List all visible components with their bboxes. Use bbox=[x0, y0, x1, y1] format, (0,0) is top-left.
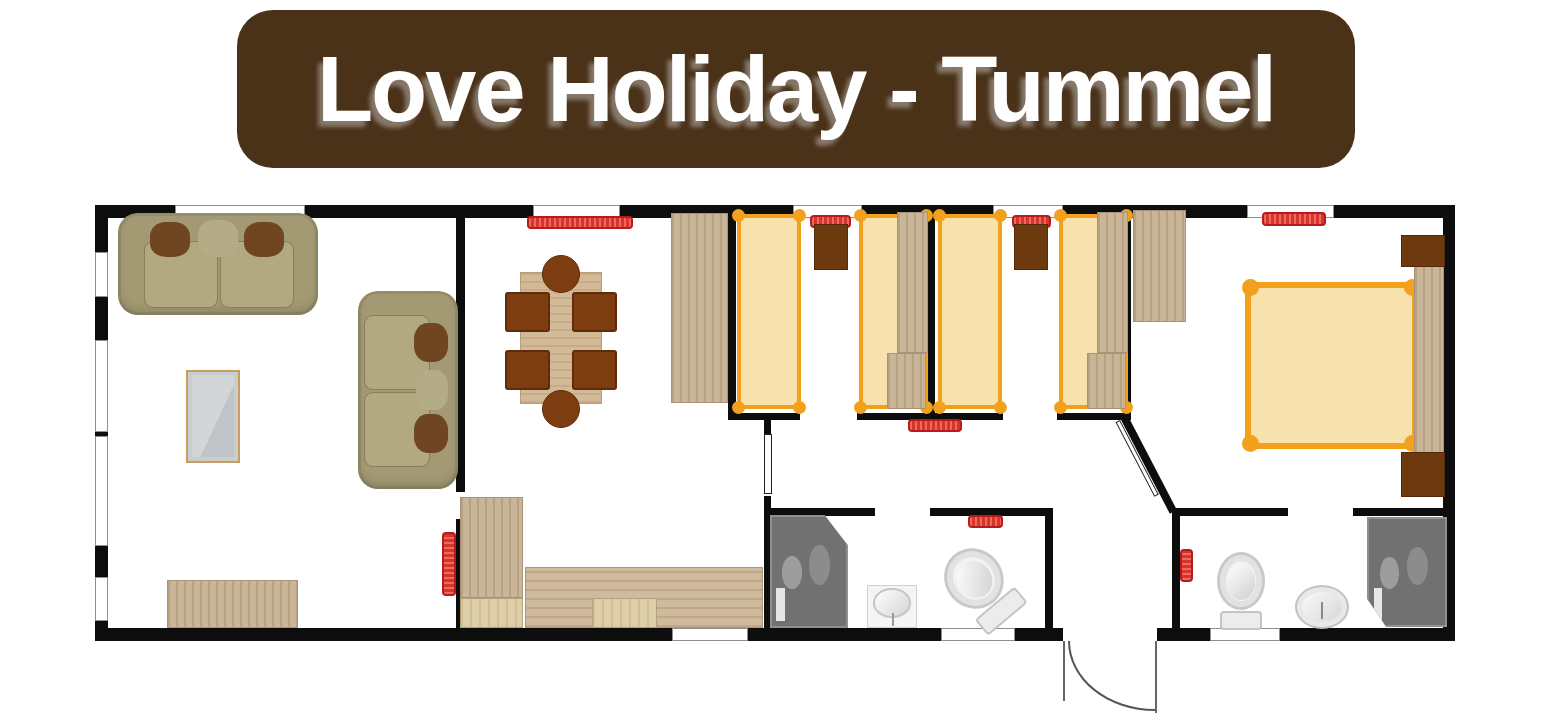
bed-left-dot bbox=[732, 209, 745, 222]
shower-room-toilet bbox=[932, 536, 1030, 638]
dining-area-stool-top bbox=[542, 255, 580, 293]
bedroom-1-bedside-unit bbox=[814, 224, 848, 270]
structure-window-bottom-1 bbox=[672, 628, 748, 641]
hallway-entrance-opening bbox=[1063, 628, 1157, 641]
toilet-bowl-in bbox=[1227, 564, 1256, 600]
shower-d2 bbox=[1407, 547, 1428, 585]
structure-wall-hall-ensuite bbox=[1172, 508, 1180, 641]
bedroom-2-wardrobe-lower bbox=[1087, 353, 1126, 409]
toilet-cistern bbox=[1220, 611, 1262, 631]
double-bed-dot bbox=[1242, 279, 1259, 296]
structure-window-left-1 bbox=[95, 252, 108, 297]
shower-room-door bbox=[764, 434, 772, 494]
shower-d1 bbox=[782, 556, 801, 589]
bedroom-1-wardrobe-lower bbox=[887, 353, 926, 409]
dining-area-chair-4 bbox=[572, 350, 617, 390]
dining-area-tall-cabinet bbox=[671, 213, 728, 403]
structure-wall-kitchen-corridor-lower bbox=[764, 496, 771, 641]
sink-tap bbox=[892, 613, 894, 625]
ensuite-toilet bbox=[1217, 552, 1265, 630]
bedroom-2-bedside-unit bbox=[1014, 224, 1048, 270]
ensuite-radiator bbox=[1180, 549, 1193, 582]
dining-area-chair-3 bbox=[505, 350, 550, 390]
shower-d3 bbox=[776, 588, 784, 621]
hallway-entrance-door-arc bbox=[1068, 641, 1155, 711]
bed-left-dot bbox=[933, 209, 946, 222]
dining-area-radiator bbox=[527, 216, 633, 229]
kitchen-tall-unit bbox=[460, 497, 523, 598]
master-bedroom-radiator bbox=[1262, 212, 1326, 226]
living-room-tv-unit bbox=[186, 370, 240, 463]
structure-window-bottom-2 bbox=[941, 628, 1015, 641]
master-bedroom-double-bed bbox=[1245, 282, 1418, 449]
structure-window-left-2 bbox=[95, 340, 108, 432]
living-room-large-sofa bbox=[118, 213, 318, 315]
shower-d1 bbox=[1380, 557, 1400, 589]
bed-right-dot bbox=[1054, 401, 1067, 414]
corridor-radiator bbox=[908, 419, 962, 432]
large-sofa-pilc bbox=[198, 220, 238, 257]
bedroom-1-wardrobe-upper bbox=[897, 212, 928, 353]
small-sofa-pilc bbox=[416, 370, 448, 410]
bed-left-dot bbox=[933, 401, 946, 414]
shower-room-sink bbox=[867, 585, 917, 628]
structure-wall-ensuite-top-right bbox=[1353, 508, 1455, 516]
structure-window-left-4 bbox=[95, 577, 108, 621]
small-sofa-pil bbox=[414, 323, 448, 363]
large-sofa-pil bbox=[150, 222, 190, 257]
living-room-sideboard bbox=[167, 580, 298, 628]
bed-left-dot bbox=[994, 401, 1007, 414]
bed-left-dot bbox=[793, 401, 806, 414]
dining-area-chair-1 bbox=[505, 292, 550, 332]
structure-window-left-3 bbox=[95, 436, 108, 546]
shower-room-shower bbox=[770, 515, 848, 628]
master-bedroom-wardrobe bbox=[1133, 210, 1186, 322]
large-sofa-pil bbox=[244, 222, 284, 257]
sink-tap bbox=[1321, 602, 1323, 620]
bedroom-2-wardrobe-upper bbox=[1097, 212, 1128, 353]
bed-left-dot bbox=[732, 401, 745, 414]
bed-left-dot bbox=[994, 209, 1007, 222]
dining-area-stool-bottom bbox=[542, 390, 580, 428]
bedroom-2-bed-left bbox=[938, 214, 1002, 409]
kitchen-base-unit-2 bbox=[592, 598, 657, 628]
small-sofa-pil bbox=[414, 414, 448, 454]
hallway-entrance-door-line-left bbox=[1063, 641, 1065, 701]
living-room-small-sofa bbox=[358, 291, 458, 489]
master-bedroom-headboard bbox=[1414, 266, 1444, 463]
bed-right-dot bbox=[854, 401, 867, 414]
bed-right-dot bbox=[854, 209, 867, 222]
shower-room-radiator bbox=[968, 515, 1003, 528]
double-bed-dot bbox=[1242, 435, 1259, 452]
bedroom-1-bed-left bbox=[737, 214, 801, 409]
bed-right-dot bbox=[1054, 209, 1067, 222]
structure-wall-dining-bedroom1 bbox=[728, 205, 736, 420]
master-bedroom-nightstand-bottom bbox=[1401, 452, 1445, 497]
kitchen-base-unit-1 bbox=[460, 598, 523, 628]
structure-wall-bedroom1-bedroom2 bbox=[928, 205, 935, 420]
ensuite-sink bbox=[1295, 585, 1349, 629]
master-bedroom-nightstand-top bbox=[1401, 235, 1445, 267]
hallway-entrance-door-line-right bbox=[1155, 641, 1157, 713]
ensuite-shower bbox=[1367, 517, 1447, 627]
living-room-radiator bbox=[442, 532, 456, 596]
shower-d3 bbox=[1374, 588, 1382, 620]
bed-left-dot bbox=[793, 209, 806, 222]
structure-wall-master-diagonal bbox=[1121, 416, 1177, 514]
shower-d2 bbox=[809, 545, 830, 584]
structure-wall-bedroom1-front-left bbox=[728, 413, 800, 420]
tv-unit-screen bbox=[192, 375, 234, 458]
dining-area-chair-2 bbox=[572, 292, 617, 332]
floor-plan bbox=[0, 0, 1567, 715]
structure-wall-kitchen-corridor-upper bbox=[764, 420, 771, 434]
structure-wall-shower-room-hall bbox=[1045, 508, 1053, 641]
page: Love Holiday - Tummel bbox=[0, 0, 1567, 715]
structure-wall-ensuite-top-left bbox=[1180, 508, 1288, 516]
structure-door-master-diagonal bbox=[1116, 420, 1159, 497]
structure-wall-shower-room-top-left bbox=[764, 508, 875, 516]
